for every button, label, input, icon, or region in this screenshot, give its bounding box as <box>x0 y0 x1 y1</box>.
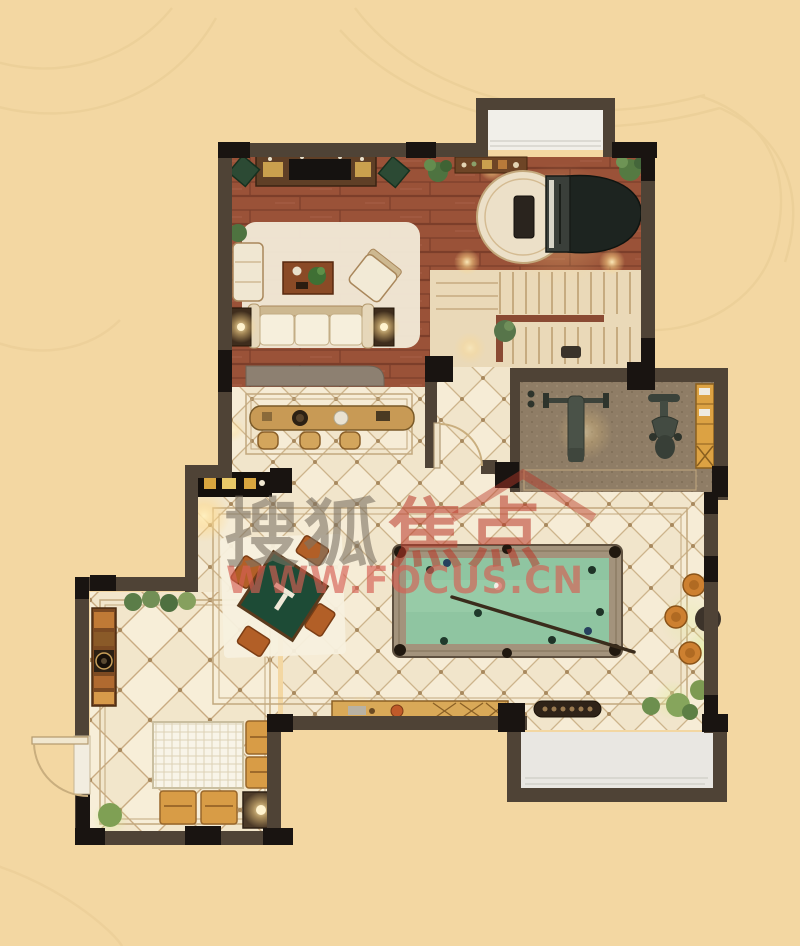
piano-bench <box>514 196 534 238</box>
sofa <box>248 304 374 348</box>
floor-plan-canvas: 搜狐 焦点 WWW.FOCUS.CN <box>0 0 800 946</box>
sideboard <box>92 608 116 706</box>
counter-plate <box>334 411 348 425</box>
entry-door-leaf <box>32 737 88 744</box>
grand-piano <box>546 175 641 252</box>
watermark: 搜狐 焦点 WWW.FOCUS.CN <box>224 474 594 602</box>
potted-plant-stairs <box>494 320 516 342</box>
potted-plant-dining <box>98 803 122 827</box>
bar-stools <box>258 432 360 449</box>
console-lamp-left <box>263 162 283 177</box>
counter-tray <box>376 411 390 421</box>
cabinet-bowl <box>391 705 403 717</box>
dining-table <box>153 722 243 788</box>
bay-window-bottom-glass <box>521 732 713 788</box>
interior-door-leaf <box>434 423 440 468</box>
armchair-left <box>233 243 263 301</box>
newel-post <box>561 346 581 358</box>
coffee-table <box>283 262 333 294</box>
bay-window-top-glass <box>488 110 603 150</box>
console-lamp-right <box>355 162 371 177</box>
cabinet-item <box>348 706 366 715</box>
floor-step-trim <box>246 366 384 386</box>
floor-plan-svg: 搜狐 焦点 WWW.FOCUS.CN <box>0 0 800 946</box>
potted-plant-entry-small <box>642 697 660 715</box>
tv-screen <box>289 159 351 180</box>
counter-item <box>262 412 272 421</box>
gym-cabinet <box>696 384 714 468</box>
watermark-url: WWW.FOCUS.CN <box>226 559 584 602</box>
